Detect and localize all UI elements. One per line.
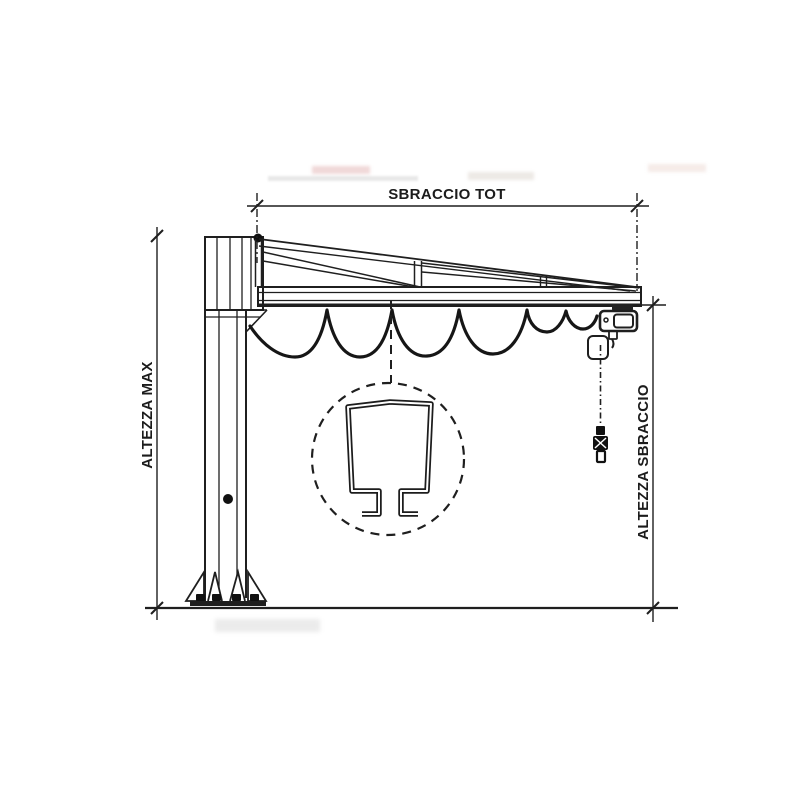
dimension-altezza-sbraccio: ALTEZZA SBRACCIO	[635, 296, 666, 622]
dimension-altezza-max: ALTEZZA MAX	[139, 227, 163, 620]
hook-block	[593, 426, 608, 462]
column-bolt-dot	[223, 494, 233, 504]
hook	[597, 451, 605, 462]
anchor-bolt	[250, 594, 259, 601]
anchor-bolt	[196, 594, 205, 601]
dimension-label-altezza-max: ALTEZZA MAX	[139, 361, 156, 468]
anchor-bolt	[232, 594, 241, 601]
column-head	[205, 237, 263, 310]
anchor-bolt	[212, 594, 221, 601]
dimension-label-altezza-sbraccio: ALTEZZA SBRACCIO	[635, 384, 652, 540]
rail-profile-section	[348, 402, 431, 514]
crane-drawing-svg: SBRACCIO TOT ALTEZZA MAX ALTEZZA SBRACCI…	[0, 0, 800, 800]
jib-arm	[256, 239, 642, 306]
column-base	[186, 572, 266, 606]
dimension-sbraccio-tot: SBRACCIO TOT	[247, 186, 649, 291]
dimension-label-sbraccio-tot: SBRACCIO TOT	[388, 186, 506, 203]
festoon-cable	[250, 310, 597, 357]
drawing-canvas: SBRACCIO TOT ALTEZZA MAX ALTEZZA SBRACCI…	[0, 0, 800, 800]
detail-circle	[312, 383, 464, 535]
base-plate	[190, 601, 266, 606]
chain-bag	[588, 336, 608, 359]
main-beam	[258, 287, 641, 306]
